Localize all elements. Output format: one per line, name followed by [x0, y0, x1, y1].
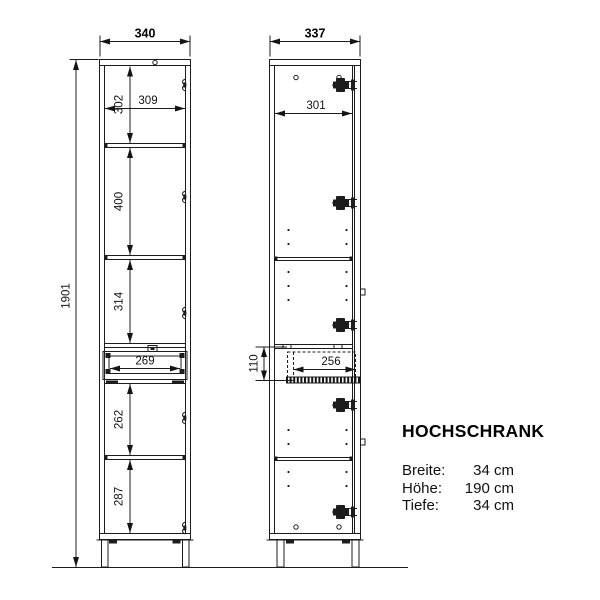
dim-drawer-front-width: 269 — [135, 356, 154, 368]
hinge-icon — [332, 318, 357, 332]
spec-label-width: Breite: — [402, 462, 445, 480]
spec-value-depth: 34 cm — [473, 497, 514, 515]
spec-value-height: 190 cm — [465, 480, 514, 498]
door-fitting-tab — [361, 289, 366, 295]
front-leg-left — [102, 540, 109, 567]
dim-front-section5: 287 — [114, 487, 126, 506]
spec-label-height: Höhe: — [402, 480, 442, 498]
screw-icon — [153, 60, 157, 64]
front-leg-right — [183, 540, 190, 567]
dim-side-top-depth: 337 — [305, 27, 326, 41]
front-shelf-1 — [105, 144, 186, 148]
dim-front-section1: 302 — [114, 95, 126, 114]
spec-row-height: Höhe: 190 cm — [402, 480, 514, 498]
screw-icon — [294, 525, 298, 529]
front-dimensions: 340 1901 302 309 400 314 269 262 287 — [61, 27, 191, 568]
spec-value-width: 34 cm — [473, 462, 514, 480]
front-shelf-3 — [105, 456, 186, 460]
dim-front-top-width: 340 — [135, 27, 156, 41]
front-view-drawing: 340 1901 302 309 400 314 269 262 287 — [61, 27, 194, 568]
side-shelf-1 — [275, 257, 353, 261]
spec-row-width: Breite: 34 cm — [402, 462, 514, 480]
screw-icon — [337, 525, 341, 529]
side-leg-right — [352, 540, 359, 567]
side-leg-left — [277, 540, 284, 567]
side-shelf-2 — [275, 457, 353, 461]
hinge-icon — [332, 398, 357, 412]
technical-drawing-canvas: 340 1901 302 309 400 314 269 262 287 — [0, 0, 600, 600]
dim-drawer-inner-depth: 256 — [321, 356, 340, 368]
dim-front-section4: 262 — [114, 410, 126, 429]
spec-row-depth: Tiefe: 34 cm — [402, 497, 514, 515]
dim-front-inner-width: 309 — [138, 95, 157, 107]
drawer-side-section — [275, 345, 361, 384]
hinge-icon — [332, 78, 357, 92]
spec-label-depth: Tiefe: — [402, 497, 439, 515]
front-drawer-top-rail — [105, 344, 186, 348]
dim-front-total-height: 1901 — [61, 283, 73, 309]
product-info-block: HOCHSCHRANK Breite: 34 cm Höhe: 190 cm T… — [402, 421, 514, 515]
door-fitting-tab — [361, 439, 366, 445]
dim-front-section2: 400 — [114, 192, 126, 211]
side-view-drawing: 337 301 110 256 — [249, 27, 366, 568]
hinge-icon — [332, 505, 357, 519]
dim-drawer-height: 110 — [249, 354, 261, 372]
dim-front-section3: 314 — [114, 291, 126, 311]
screw-icon — [294, 75, 298, 79]
front-shelf-2 — [105, 256, 186, 260]
dim-side-inner-depth: 301 — [306, 100, 325, 112]
product-title: HOCHSCHRANK — [402, 421, 514, 442]
hinge-icon — [332, 196, 357, 210]
